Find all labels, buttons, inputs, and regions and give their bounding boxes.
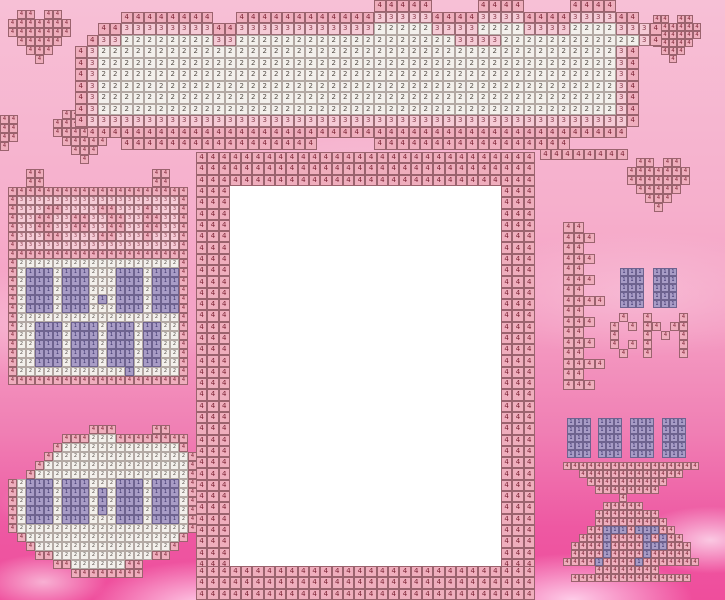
- stitch-cell: 4: [286, 175, 297, 186]
- stitch-cell: 4: [8, 367, 17, 376]
- empty-cell: [17, 443, 26, 452]
- stitch-cell: 2: [225, 92, 237, 104]
- stitch-cell: 4: [179, 241, 188, 250]
- stitch-cell: 2: [167, 58, 179, 70]
- stitch-cell: 4: [219, 322, 230, 333]
- stitch-cell: 2: [17, 340, 26, 349]
- stitch-cell: 4: [611, 478, 619, 486]
- stitch-cell: 4: [643, 349, 652, 358]
- stitch-cell: 4: [422, 566, 433, 577]
- stitch-cell: 4: [219, 514, 230, 525]
- stitch-cell: 4: [524, 220, 535, 231]
- stitch-cell: 2: [53, 313, 62, 322]
- stitch-cell: 3: [62, 223, 71, 232]
- stitch-cell: 4: [207, 265, 218, 276]
- stitch-cell: 4: [574, 222, 585, 233]
- stitch-cell: 2: [107, 551, 116, 560]
- stitch-cell: 4: [563, 306, 574, 317]
- empty-cell: [110, 12, 122, 24]
- empty-cell: [681, 158, 690, 167]
- stitch-cell: 2: [143, 524, 152, 533]
- stitch-cell: 3: [62, 241, 71, 250]
- stitch-cell: 4: [643, 518, 651, 526]
- stitch-cell: 2: [432, 46, 444, 58]
- stitch-cell: 3: [35, 205, 44, 214]
- stitch-cell: 4: [611, 558, 619, 566]
- stitch-cell: 4: [53, 19, 62, 28]
- stitch-cell: 1: [80, 506, 89, 515]
- stitch-cell: 4: [571, 550, 579, 558]
- purple-block-upper-1: 111111111111111: [620, 268, 644, 308]
- stitch-cell: 2: [80, 259, 89, 268]
- stitch-cell: 4: [611, 566, 619, 574]
- stitch-cell: 1: [152, 479, 161, 488]
- stitch-cell: 4: [35, 19, 44, 28]
- cloud-bottom-right-edge: 44444444: [540, 149, 628, 160]
- stitch-cell: 2: [455, 104, 467, 116]
- stitch-cell: 4: [374, 0, 386, 12]
- stitch-cell: 2: [466, 92, 478, 104]
- stitch-cell: 2: [363, 81, 375, 93]
- stitch-cell: 2: [409, 23, 421, 35]
- stitch-cell: 4: [225, 23, 237, 35]
- empty-cell: [161, 560, 170, 569]
- stitch-cell: 3: [478, 35, 490, 47]
- stitch-cell: 4: [179, 214, 188, 223]
- stitch-cell: 4: [386, 138, 398, 150]
- stitch-cell: 4: [501, 401, 512, 412]
- stitch-cell: 1: [125, 358, 134, 367]
- empty-cell: [681, 203, 690, 212]
- stitch-cell: 2: [17, 349, 26, 358]
- stitch-cell: 3: [35, 196, 44, 205]
- empty-cell: [35, 560, 44, 569]
- stitch-cell: 1: [62, 488, 71, 497]
- stitch-cell: 3: [87, 104, 99, 116]
- stitch-cell: 2: [62, 470, 71, 479]
- stitch-cell: 1: [53, 358, 62, 367]
- stitch-cell: 4: [645, 167, 654, 176]
- stitch-cell: 2: [89, 286, 98, 295]
- stitch-cell: 1: [116, 506, 125, 515]
- stitch-cell: 4: [298, 163, 309, 174]
- stitch-cell: 2: [225, 69, 237, 81]
- stitch-cell: 4: [230, 577, 241, 588]
- stitch-cell: 4: [397, 138, 409, 150]
- stitch-cell: 2: [466, 46, 478, 58]
- stitch-cell: 4: [501, 220, 512, 231]
- stitch-cell: 4: [98, 232, 107, 241]
- stitch-cell: 4: [343, 163, 354, 174]
- stitch-cell: 4: [35, 28, 44, 37]
- stitch-cell: 4: [0, 133, 9, 142]
- empty-cell: [17, 569, 26, 578]
- stitch-cell: 4: [643, 470, 651, 478]
- stitch-cell: 3: [340, 115, 352, 127]
- stitch-cell: 1: [71, 304, 80, 313]
- empty-cell: [675, 478, 683, 486]
- stitch-cell: 2: [397, 46, 409, 58]
- stitch-cell: 4: [524, 457, 535, 468]
- empty-cell: [71, 425, 80, 434]
- stitch-cell: 4: [207, 288, 218, 299]
- stitch-cell: 2: [152, 524, 161, 533]
- empty-cell: [595, 348, 606, 359]
- stitch-cell: 3: [271, 23, 283, 35]
- stitch-cell: 4: [524, 175, 535, 186]
- stitch-cell: 3: [62, 214, 71, 223]
- stitch-cell: 2: [593, 69, 605, 81]
- stitch-cell: 1: [44, 295, 53, 304]
- stitch-cell: 4: [152, 178, 161, 187]
- stitch-cell: 4: [645, 176, 654, 185]
- empty-cell: [8, 452, 17, 461]
- stitch-cell: 2: [167, 35, 179, 47]
- stitch-cell: 4: [0, 142, 9, 151]
- stitch-cell: 4: [489, 0, 501, 12]
- stitch-cell: 1: [71, 322, 80, 331]
- stitch-cell: 4: [196, 299, 207, 310]
- stitch-cell: 4: [659, 550, 667, 558]
- stitch-cell: 4: [619, 478, 627, 486]
- stitch-cell: 4: [693, 23, 701, 31]
- stitch-cell: 4: [219, 333, 230, 344]
- stitch-cell: 3: [179, 115, 191, 127]
- stitch-cell: 4: [196, 152, 207, 163]
- stitch-cell: 4: [241, 566, 252, 577]
- stitch-cell: 4: [35, 214, 44, 223]
- empty-cell: [639, 81, 651, 93]
- stitch-cell: 4: [478, 163, 489, 174]
- stitch-cell: 3: [17, 205, 26, 214]
- stitch-cell: 2: [282, 35, 294, 47]
- stitch-cell: 2: [26, 358, 35, 367]
- stitch-cell: 4: [595, 542, 603, 550]
- stitch-cell: 2: [152, 452, 161, 461]
- stitch-cell: 2: [62, 367, 71, 376]
- stitch-cell: 4: [125, 569, 134, 578]
- stitch-cell: 1: [89, 340, 98, 349]
- stitch-cell: 2: [62, 452, 71, 461]
- stitch-cell: 2: [167, 92, 179, 104]
- stitch-cell: 3: [466, 115, 478, 127]
- stitch-cell: 2: [143, 268, 152, 277]
- empty-cell: [652, 340, 661, 349]
- stitch-cell: 4: [490, 152, 501, 163]
- stitch-cell: 4: [134, 376, 143, 385]
- stitch-cell: 1: [620, 268, 628, 276]
- stitch-cell: 4: [264, 566, 275, 577]
- empty-cell: [654, 158, 663, 167]
- stitch-cell: 1: [125, 515, 134, 524]
- stitch-cell: 2: [512, 69, 524, 81]
- stitch-cell: 1: [116, 497, 125, 506]
- stitch-cell: 4: [512, 220, 523, 231]
- stitch-cell: 1: [71, 331, 80, 340]
- stitch-cell: 4: [584, 338, 595, 349]
- stitch-cell: 4: [62, 250, 71, 259]
- empty-cell: [87, 23, 99, 35]
- empty-cell: [26, 434, 35, 443]
- empty-cell: [611, 494, 619, 502]
- stitch-cell: 4: [219, 378, 230, 389]
- stitch-cell: 4: [17, 37, 26, 46]
- stitch-cell: 2: [570, 46, 582, 58]
- stitch-cell: 2: [133, 35, 145, 47]
- stitch-cell: 2: [213, 46, 225, 58]
- stitch-cell: 4: [44, 376, 53, 385]
- empty-cell: [179, 560, 188, 569]
- stitch-cell: 2: [409, 58, 421, 70]
- stitch-cell: 3: [616, 46, 628, 58]
- stitch-cell: 4: [603, 486, 611, 494]
- stitch-cell: 4: [636, 185, 645, 194]
- stitch-cell: 1: [653, 284, 661, 292]
- stitch-cell: 1: [125, 488, 134, 497]
- stitch-cell: 2: [305, 46, 317, 58]
- stitch-cell: 4: [636, 167, 645, 176]
- stitch-cell: 4: [574, 380, 585, 391]
- stitch-cell: 3: [116, 241, 125, 250]
- stitch-cell: 3: [271, 115, 283, 127]
- stitch-cell: 4: [627, 81, 639, 93]
- stitch-cell: 1: [35, 286, 44, 295]
- stitch-cell: 2: [161, 313, 170, 322]
- stitch-cell: 3: [489, 35, 501, 47]
- stitch-cell: 1: [620, 276, 628, 284]
- stitch-cell: 1: [125, 367, 134, 376]
- empty-cell: [143, 425, 152, 434]
- stitch-cell: 2: [317, 58, 329, 70]
- stitch-cell: 1: [161, 277, 170, 286]
- stitch-cell: 2: [443, 92, 455, 104]
- stitch-cell: 3: [581, 115, 593, 127]
- stitch-cell: 1: [662, 418, 670, 426]
- stitch-cell: 4: [219, 435, 230, 446]
- stitch-cell: 2: [190, 35, 202, 47]
- empty-cell: [110, 0, 122, 12]
- stitch-cell: 4: [8, 241, 17, 250]
- stitch-cell: 2: [116, 470, 125, 479]
- stitch-cell: 4: [551, 149, 562, 160]
- empty-cell: [8, 461, 17, 470]
- stitch-cell: 3: [62, 205, 71, 214]
- stitch-cell: 4: [196, 548, 207, 559]
- empty-cell: [179, 551, 188, 560]
- stitch-cell: 2: [143, 515, 152, 524]
- stitch-cell: 2: [26, 259, 35, 268]
- stitch-cell: 4: [456, 566, 467, 577]
- stitch-cell: 1: [71, 488, 80, 497]
- stitch-cell: 4: [259, 127, 271, 139]
- stitch-cell: 4: [617, 149, 628, 160]
- stitch-cell: 4: [179, 187, 188, 196]
- stitch-cell: 4: [445, 163, 456, 174]
- stitch-cell: 2: [386, 46, 398, 58]
- stitch-cell: 2: [144, 104, 156, 116]
- stitch-cell: 4: [116, 250, 125, 259]
- stitch-cell: 2: [143, 313, 152, 322]
- stitch-cell: 1: [669, 284, 677, 292]
- stitch-cell: 4: [512, 548, 523, 559]
- stitch-cell: 1: [107, 331, 116, 340]
- stitch-cell: 1: [116, 515, 125, 524]
- stitch-cell: 2: [80, 443, 89, 452]
- stitch-cell: 1: [125, 322, 134, 331]
- stitch-cell: 2: [248, 35, 260, 47]
- stitch-cell: 2: [524, 81, 536, 93]
- stitch-cell: 2: [305, 104, 317, 116]
- stitch-cell: 4: [478, 577, 489, 588]
- stitch-cell: 4: [207, 242, 218, 253]
- empty-cell: [17, 452, 26, 461]
- stitch-cell: 1: [35, 515, 44, 524]
- stitch-cell: 4: [593, 127, 605, 139]
- stitch-cell: 2: [71, 313, 80, 322]
- stitch-cell: 4: [75, 46, 87, 58]
- stitch-cell: 2: [202, 92, 214, 104]
- stitch-cell: 2: [133, 81, 145, 93]
- stitch-cell: 3: [170, 214, 179, 223]
- stitch-cell: 4: [691, 462, 699, 470]
- stitch-cell: 2: [170, 349, 179, 358]
- empty-cell: [340, 138, 352, 150]
- stitch-cell: 2: [125, 470, 134, 479]
- stitch-cell: 2: [340, 35, 352, 47]
- stitch-cell: 4: [524, 254, 535, 265]
- empty-cell: [107, 169, 116, 178]
- stitch-cell: 4: [35, 250, 44, 259]
- empty-cell: [35, 443, 44, 452]
- stitch-cell: 4: [399, 163, 410, 174]
- stitch-cell: 4: [467, 163, 478, 174]
- stitch-cell: 2: [363, 92, 375, 104]
- stitch-cell: 2: [570, 104, 582, 116]
- stitch-cell: 4: [610, 331, 619, 340]
- stitch-cell: 2: [110, 46, 122, 58]
- stitch-cell: 4: [635, 462, 643, 470]
- stitch-cell: 3: [110, 35, 122, 47]
- stitch-cell: 3: [125, 241, 134, 250]
- empty-cell: [587, 566, 595, 574]
- empty-cell: [156, 0, 168, 12]
- stitch-cell: 4: [179, 277, 188, 286]
- stitch-cell: 4: [679, 349, 688, 358]
- stitch-cell: 4: [196, 435, 207, 446]
- empty-cell: [691, 470, 699, 478]
- empty-cell: [53, 434, 62, 443]
- stitch-cell: 4: [422, 163, 433, 174]
- stitch-cell: 4: [196, 310, 207, 321]
- stitch-cell: 2: [17, 358, 26, 367]
- stitch-cell: 1: [125, 277, 134, 286]
- empty-cell: [593, 138, 605, 150]
- empty-cell: [80, 169, 89, 178]
- stitch-cell: 1: [116, 349, 125, 358]
- stitch-cell: 4: [512, 367, 523, 378]
- stitch-cell: 4: [365, 152, 376, 163]
- stitch-cell: 4: [143, 250, 152, 259]
- stitch-cell: 4: [512, 446, 523, 457]
- empty-cell: [627, 185, 636, 194]
- stitch-cell: 2: [143, 295, 152, 304]
- stitch-cell: 3: [616, 23, 628, 35]
- stitch-cell: 1: [170, 277, 179, 286]
- stitch-cell: 2: [89, 461, 98, 470]
- stitch-cell: 4: [643, 510, 651, 518]
- stitch-cell: 4: [524, 589, 535, 600]
- empty-cell: [683, 494, 691, 502]
- stitch-cell: 4: [627, 104, 639, 116]
- empty-cell: [670, 313, 679, 322]
- stitch-cell: 2: [143, 286, 152, 295]
- stitch-cell: 4: [611, 534, 619, 542]
- empty-cell: [683, 534, 691, 542]
- stitch-cell: 2: [161, 340, 170, 349]
- stitch-cell: 4: [286, 163, 297, 174]
- stitch-cell: 2: [134, 551, 143, 560]
- stitch-cell: 1: [628, 292, 636, 300]
- stitch-cell: 4: [44, 187, 53, 196]
- stitch-cell: 4: [595, 486, 603, 494]
- stitch-cell: 4: [652, 322, 661, 331]
- stitch-cell: 4: [654, 185, 663, 194]
- stitch-cell: 4: [587, 478, 595, 486]
- stitch-cell: 4: [219, 548, 230, 559]
- stitch-cell: 2: [179, 92, 191, 104]
- stitch-cell: 4: [286, 577, 297, 588]
- stitch-cell: 4: [611, 510, 619, 518]
- stitch-cell: 4: [595, 462, 603, 470]
- stitch-cell: 4: [587, 574, 595, 582]
- stitch-cell: 2: [152, 259, 161, 268]
- stitch-cell: 4: [332, 163, 343, 174]
- stitch-cell: 1: [44, 479, 53, 488]
- stitch-cell: 4: [107, 569, 116, 578]
- stitch-cell: 4: [271, 12, 283, 24]
- stitch-cell: 4: [196, 389, 207, 400]
- empty-cell: [662, 12, 674, 24]
- stitch-cell: 4: [17, 250, 26, 259]
- stitch-cell: 4: [587, 542, 595, 550]
- stitch-cell: 4: [563, 296, 574, 307]
- stitch-cell: 4: [170, 187, 179, 196]
- purple-block-row-3: 111111111111111: [630, 418, 654, 458]
- stitch-cell: 4: [75, 58, 87, 70]
- stitch-cell: 3: [143, 241, 152, 250]
- stitch-cell: 4: [627, 518, 635, 526]
- stitch-cell: 4: [161, 376, 170, 385]
- stitch-cell: 2: [432, 69, 444, 81]
- stitch-cell: 2: [107, 295, 116, 304]
- stitch-cell: 2: [282, 81, 294, 93]
- stitch-cell: 2: [512, 104, 524, 116]
- stitch-cell: 1: [152, 340, 161, 349]
- stitch-cell: 4: [374, 138, 386, 150]
- stitch-cell: 4: [196, 186, 207, 197]
- stitch-cell: 2: [98, 358, 107, 367]
- stitch-cell: 4: [35, 37, 44, 46]
- stitch-cell: 2: [134, 358, 143, 367]
- stitch-cell: 2: [213, 81, 225, 93]
- stitch-cell: 2: [62, 340, 71, 349]
- stitch-cell: 4: [627, 566, 635, 574]
- stitch-cell: 1: [575, 442, 583, 450]
- stitch-cell: 2: [134, 322, 143, 331]
- stitch-cell: 2: [116, 461, 125, 470]
- stitch-cell: 4: [672, 158, 681, 167]
- stitch-cell: 4: [134, 569, 143, 578]
